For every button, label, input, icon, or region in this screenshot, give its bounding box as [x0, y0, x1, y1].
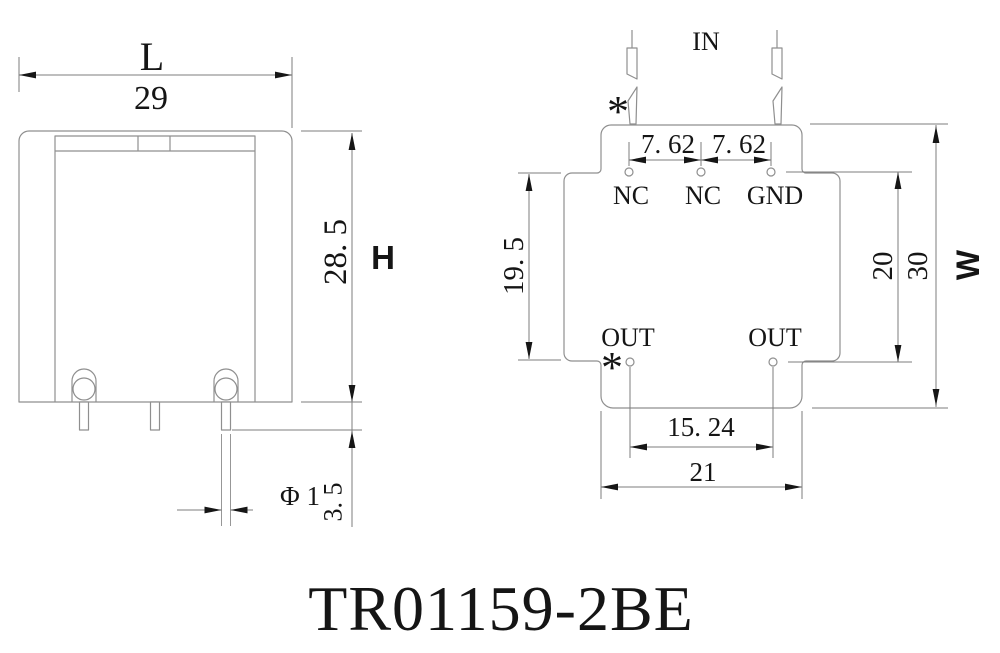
pin-layout-view: IN * NC NC GND OUT OUT * 7. 62 7. 62 [498, 27, 986, 499]
pin-label-nc-2: NC [685, 181, 721, 210]
wire-upper-segment [627, 48, 637, 79]
wire-lower-segment [628, 87, 637, 124]
arrowhead-right [205, 507, 222, 514]
front-height-letter: H [371, 239, 395, 276]
bottom-pitch-value: 15. 24 [667, 412, 735, 442]
arrowhead-up [349, 133, 356, 150]
pin-label-gnd: GND [747, 181, 803, 210]
part-number: TR01159-2BE [308, 573, 694, 644]
pin-diameter-value: Φ 1 [280, 481, 320, 511]
technical-drawing-page: L 29 28. 5 H 3. 5 Φ 1 [0, 0, 1000, 653]
arrowhead-down [895, 345, 902, 362]
arrowhead-right [756, 444, 773, 451]
front-view: L 29 28. 5 H 3. 5 Φ 1 [19, 34, 395, 527]
body-width-letter: W [950, 249, 986, 280]
row-spacing-value: 19. 5 [498, 237, 530, 295]
arrowhead-down [349, 385, 356, 402]
arrowhead-right [275, 72, 292, 79]
transformer-dimension-drawing: L 29 28. 5 H 3. 5 Φ 1 [0, 0, 1000, 653]
pin-hole-out-left [626, 358, 634, 366]
arrowhead-down [933, 389, 940, 406]
front-width-letter: L [140, 34, 164, 79]
wire-lower-segment [773, 87, 782, 124]
arrowhead-down [526, 342, 533, 359]
body-width-value: 30 [902, 252, 934, 281]
arrowhead-left [630, 444, 647, 451]
arrowhead-right [785, 484, 802, 491]
pin-hole-out-right [769, 358, 777, 366]
input-label: IN [692, 27, 720, 56]
pin-pitch-value-1: 7. 62 [641, 129, 695, 159]
pin-hole-gnd [767, 168, 775, 176]
flange-width-value: 21 [690, 457, 717, 487]
front-width-value: 29 [134, 80, 168, 117]
front-body-outline [19, 131, 292, 402]
arrowhead-up [895, 172, 902, 189]
arrowhead-left [231, 507, 248, 514]
front-pin-2 [151, 402, 160, 430]
arrowhead-left [19, 72, 36, 79]
pin-label-nc-1: NC [613, 181, 649, 210]
pin-label-out-right: OUT [748, 323, 802, 352]
pin-hole-nc-2 [697, 168, 705, 176]
input-wire-right [772, 30, 782, 124]
front-view-body [19, 131, 292, 430]
arrowhead-up [526, 174, 533, 191]
pin-pitch-value-2: 7. 62 [712, 129, 766, 159]
pin-hole-nc-1 [625, 168, 633, 176]
front-pin-1 [80, 402, 89, 430]
arrowhead-up [933, 126, 940, 143]
front-pin-3 [222, 402, 231, 430]
polarity-marker-bottom: * [601, 343, 623, 392]
wire-upper-segment [772, 48, 782, 79]
arrowhead-left [601, 484, 618, 491]
front-height-value: 28. 5 [318, 219, 354, 285]
arrowhead-up [349, 431, 356, 448]
polarity-marker-top: * [607, 87, 629, 136]
pin-protrusion-value: 3. 5 [319, 483, 348, 522]
pin-span-value: 20 [867, 252, 899, 281]
